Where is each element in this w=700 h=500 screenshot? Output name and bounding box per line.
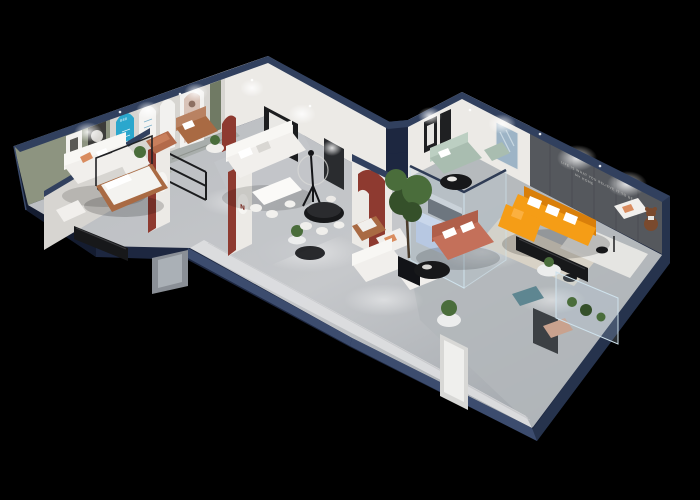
- cactus: [597, 313, 606, 322]
- floorplan-scene: 888: [0, 0, 700, 500]
- black-oval-table: [414, 261, 450, 279]
- table-plant: [210, 135, 220, 145]
- white-chair: [300, 222, 312, 230]
- small-table: [596, 247, 608, 254]
- ceiling-spot: [539, 133, 542, 136]
- table-plant: [544, 257, 554, 267]
- floor-spot-oval: [295, 246, 325, 260]
- ceiling-spot: [179, 93, 182, 96]
- white-chair: [334, 221, 345, 228]
- ceiling-spot: [309, 105, 312, 108]
- dining-chair: [266, 210, 278, 218]
- plant: [441, 300, 457, 316]
- ceiling-spot: [251, 79, 254, 82]
- ceiling-spot: [469, 109, 472, 112]
- ceiling-spot: [599, 165, 602, 168]
- dining-chair: [285, 200, 296, 207]
- showroom-render: 888: [0, 0, 700, 500]
- dining-chair: [250, 204, 262, 212]
- red-stripe: [228, 168, 236, 256]
- cactus: [580, 304, 592, 316]
- cactus: [567, 297, 577, 307]
- black-oval-table: [440, 174, 472, 190]
- potted-plant: [134, 146, 146, 158]
- white-chair: [316, 227, 328, 235]
- white-chair: [326, 196, 336, 202]
- ceiling-spot: [119, 111, 122, 114]
